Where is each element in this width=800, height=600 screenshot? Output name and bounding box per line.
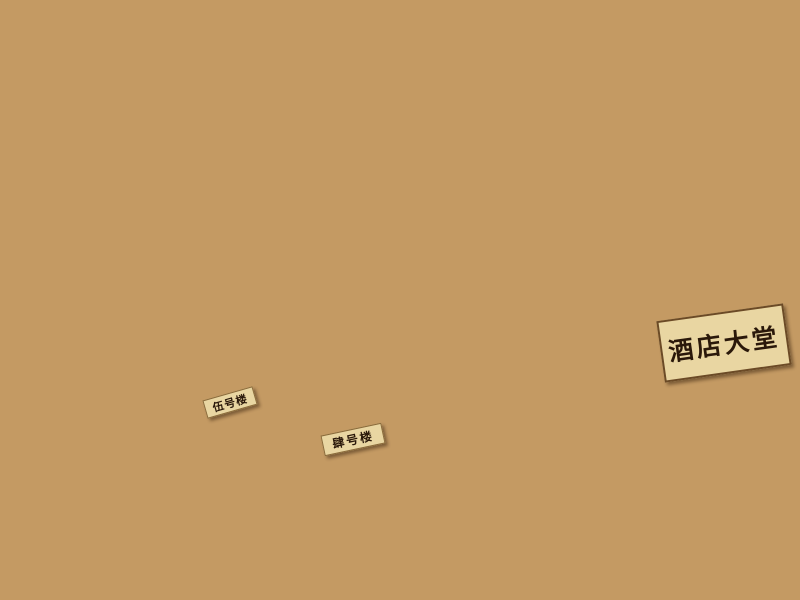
terrain-artwork [0,0,800,600]
scale-model-photo: 酒店大堂 伍号楼 肆号楼 [0,0,800,600]
